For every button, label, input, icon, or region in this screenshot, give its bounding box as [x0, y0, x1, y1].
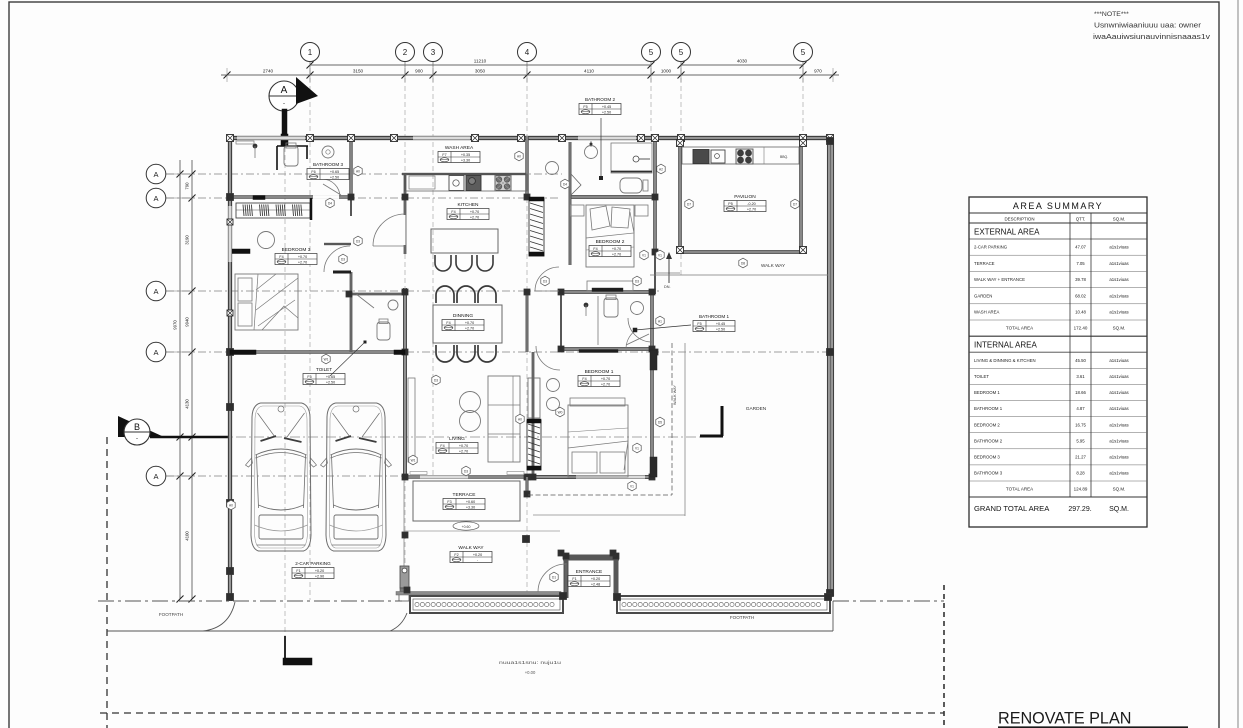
svg-text:+0.70: +0.70	[470, 210, 479, 214]
svg-text:F4: F4	[451, 210, 455, 214]
svg-text:a1s1viuas: a1s1viuas	[1109, 422, 1128, 427]
svg-text:+0.00: +0.00	[525, 670, 536, 675]
svg-text:F5: F5	[583, 105, 587, 109]
svg-text:+2.70: +2.70	[465, 327, 474, 331]
svg-text:BATHROOM 3: BATHROOM 3	[974, 471, 1003, 476]
svg-text:+3.30: +3.30	[461, 159, 470, 163]
svg-text:LIVING: LIVING	[449, 436, 465, 442]
svg-text:+0.60: +0.60	[466, 500, 475, 504]
svg-text:iwaAauiwsiunauvinnisnaaas1v: iwaAauiwsiunauvinnisnaaas1v	[1093, 32, 1210, 41]
svg-text:KITCHEN: KITCHEN	[457, 202, 479, 208]
svg-text:BATHROOM 1: BATHROOM 1	[699, 314, 729, 319]
svg-text:TERRACE: TERRACE	[974, 261, 995, 266]
svg-text:4100: 4100	[185, 531, 190, 541]
svg-text:+2.48: +2.48	[591, 583, 600, 587]
svg-text:AREA SUMMARY: AREA SUMMARY	[1013, 201, 1103, 211]
svg-text:Usnwniwiaaniuuu uaa: owner: Usnwniwiaaniuuu uaa: owner	[1094, 21, 1202, 30]
svg-text:5.95: 5.95	[1076, 438, 1085, 443]
svg-text:D3: D3	[543, 279, 547, 283]
svg-text:297.29.: 297.29.	[1068, 506, 1091, 513]
svg-text:1: 1	[308, 48, 313, 57]
svg-text:V1: V1	[658, 253, 662, 257]
svg-text:SQ.M.: SQ.M.	[1113, 326, 1126, 331]
svg-text:+0.70: +0.70	[465, 321, 474, 325]
svg-text:a1s1viuas: a1s1viuas	[1109, 374, 1128, 379]
svg-text:a1s1viuas: a1s1viuas	[1109, 245, 1128, 250]
svg-text:D4: D4	[563, 182, 567, 186]
svg-text:PAVILION: PAVILION	[734, 194, 756, 200]
svg-text:+0.70: +0.70	[459, 444, 468, 448]
svg-text:TOTAL AREA: TOTAL AREA	[1006, 326, 1033, 331]
svg-text:A: A	[281, 85, 288, 96]
svg-text:3150: 3150	[353, 69, 364, 74]
svg-text:4110: 4110	[584, 69, 594, 74]
svg-text:172.40: 172.40	[1074, 326, 1088, 331]
svg-text:A1: A1	[658, 319, 662, 323]
svg-text:DN.: DN.	[664, 285, 671, 289]
svg-text:F5: F5	[697, 322, 701, 326]
svg-text:V1: V1	[642, 253, 646, 257]
svg-text:5: 5	[679, 48, 684, 57]
svg-text:BATHROOM 3: BATHROOM 3	[313, 162, 343, 167]
svg-text:RENOVATE PLAN: RENOVATE PLAN	[998, 710, 1131, 728]
svg-text:WALK WAY: WALK WAY	[673, 385, 677, 405]
svg-text:+0.45: +0.45	[602, 105, 611, 109]
svg-text:124.89: 124.89	[1074, 487, 1088, 492]
svg-text:WASH AREA: WASH AREA	[974, 310, 1000, 315]
svg-text:3190: 3190	[185, 235, 190, 245]
svg-text:5: 5	[649, 48, 654, 57]
svg-text:+2.50: +2.50	[330, 176, 339, 180]
svg-text:+0.20: +0.20	[591, 577, 600, 581]
svg-text:F4: F4	[446, 321, 450, 325]
svg-text:a1s1viuas: a1s1viuas	[1109, 390, 1128, 395]
svg-text:TOILET: TOILET	[974, 374, 989, 379]
svg-text:+0.35: +0.35	[461, 153, 470, 157]
svg-text:WALK WAY + ENTRANCE: WALK WAY + ENTRANCE	[974, 277, 1025, 282]
svg-text:W0: W0	[558, 410, 563, 414]
svg-text:D4: D4	[328, 201, 332, 205]
svg-text:+2.70: +2.70	[601, 383, 610, 387]
svg-text:+0.70: +0.70	[601, 377, 610, 381]
svg-text:+2.70: +2.70	[470, 216, 479, 220]
svg-text:D3: D3	[464, 469, 468, 473]
svg-text:D3: D3	[341, 257, 345, 261]
svg-text:A: A	[153, 194, 158, 203]
svg-text:-: -	[283, 101, 285, 107]
svg-text:D3: D3	[635, 279, 639, 283]
svg-text:F7: F7	[442, 153, 446, 157]
svg-text:WALK WAY: WALK WAY	[458, 545, 484, 551]
svg-text:a1s1viuas: a1s1viuas	[1109, 277, 1128, 282]
svg-text:+0.60: +0.60	[462, 525, 471, 529]
svg-text:3050: 3050	[475, 69, 486, 74]
svg-text:900: 900	[415, 69, 423, 74]
svg-text:F4: F4	[582, 377, 586, 381]
svg-text:BATHROOM 2: BATHROOM 2	[974, 438, 1003, 443]
svg-text:+2.50: +2.50	[716, 328, 725, 332]
svg-text:A: A	[153, 348, 158, 357]
svg-text:WASH AREA: WASH AREA	[445, 145, 474, 151]
svg-text:D1: D1	[552, 575, 556, 579]
svg-text:2-CAR PARKING: 2-CAR PARKING	[974, 245, 1008, 250]
svg-text:V1: V1	[630, 484, 634, 488]
svg-text:9970: 9970	[173, 320, 178, 330]
svg-text:4.87: 4.87	[1076, 406, 1085, 411]
svg-text:***NOTE***: ***NOTE***	[1094, 11, 1129, 18]
svg-text:2740: 2740	[263, 69, 274, 74]
svg-text:EXTERNAL AREA: EXTERNAL AREA	[974, 228, 1040, 237]
svg-text:D3: D3	[434, 378, 438, 382]
svg-text:+3.30: +3.30	[466, 506, 475, 510]
svg-text:BEDROOM 2: BEDROOM 2	[974, 422, 1000, 427]
svg-text:GARDEN: GARDEN	[974, 293, 992, 298]
svg-text:790: 790	[185, 182, 190, 190]
svg-text:5: 5	[801, 48, 806, 57]
svg-text:68.02: 68.02	[1075, 293, 1086, 298]
svg-text:F1: F1	[572, 577, 576, 581]
svg-text:+2.70: +2.70	[459, 450, 468, 454]
svg-text:GARDEN: GARDEN	[746, 406, 767, 412]
svg-text:W1: W1	[324, 357, 329, 361]
svg-text:D3: D3	[356, 239, 360, 243]
svg-text:9940: 9940	[185, 317, 190, 327]
svg-text:INTERNAL AREA: INTERNAL AREA	[974, 341, 1037, 350]
svg-text:+2.50: +2.50	[326, 381, 335, 385]
svg-text:LIVING & DINNING & KITCHEN: LIVING & DINNING & KITCHEN	[974, 358, 1036, 363]
svg-text:BEDROOM 2: BEDROOM 2	[596, 239, 625, 245]
svg-text:4: 4	[525, 48, 530, 57]
svg-text:TOTAL AREA: TOTAL AREA	[1006, 487, 1033, 492]
svg-text:+0.20: +0.20	[473, 553, 482, 557]
svg-text:+0.70: +0.70	[298, 255, 307, 259]
svg-text:a1s1viuas: a1s1viuas	[1109, 438, 1128, 443]
svg-text:-: -	[136, 436, 138, 442]
svg-text:A: A	[153, 170, 158, 179]
svg-text:F6: F6	[311, 170, 315, 174]
svg-text:nuua1s1snu: nuju1u: nuua1s1snu: nuju1u	[499, 660, 562, 665]
svg-text:A2: A2	[659, 167, 663, 171]
svg-text:BEDROOM 3: BEDROOM 3	[282, 247, 311, 253]
svg-text:A0: A0	[518, 417, 522, 421]
svg-text:SQ.M.: SQ.M.	[1109, 506, 1129, 513]
svg-text:V1: V1	[635, 446, 639, 450]
svg-text:F4: F4	[440, 444, 444, 448]
svg-text:2-CAR PARKING: 2-CAR PARKING	[295, 561, 331, 566]
svg-text:TOILET: TOILET	[316, 367, 332, 372]
svg-text:WALK WAY: WALK WAY	[761, 263, 785, 268]
svg-text:45.50: 45.50	[1075, 358, 1086, 363]
svg-text:F1: F1	[296, 569, 300, 573]
svg-text:11210: 11210	[474, 59, 487, 64]
svg-text:+0.20: +0.20	[315, 569, 324, 573]
svg-text:A: A	[153, 472, 158, 481]
svg-text:A0: A0	[229, 503, 233, 507]
svg-text:A0: A0	[356, 169, 360, 173]
svg-text:F3: F3	[447, 500, 451, 504]
svg-text:D7: D7	[793, 202, 797, 206]
svg-text:BEDROOM 3: BEDROOM 3	[974, 454, 1000, 459]
svg-text:47.07: 47.07	[1075, 245, 1086, 250]
svg-text:a1s1viuas: a1s1viuas	[1109, 261, 1128, 266]
svg-text:a1s1viuas: a1s1viuas	[1109, 406, 1128, 411]
svg-text:+2.70: +2.70	[612, 253, 621, 257]
svg-text:4030: 4030	[737, 59, 748, 64]
svg-text:3.61: 3.61	[1076, 374, 1085, 379]
svg-text:D5: D5	[658, 420, 662, 424]
svg-text:F5: F5	[307, 375, 311, 379]
svg-text:+2.90: +2.90	[315, 575, 324, 579]
svg-text:a1s1viuas: a1s1viuas	[1109, 358, 1128, 363]
svg-text:8.28: 8.28	[1076, 471, 1085, 476]
svg-text:3: 3	[431, 48, 436, 57]
svg-text:21.27: 21.27	[1075, 454, 1086, 459]
svg-text:FOOTPATH: FOOTPATH	[730, 615, 754, 620]
svg-text:BBQ.: BBQ.	[780, 155, 788, 159]
svg-text:GRAND TOTAL AREA: GRAND TOTAL AREA	[974, 504, 1050, 513]
svg-text:10.48: 10.48	[1075, 310, 1086, 315]
svg-text:4130: 4130	[185, 399, 190, 409]
svg-text:BATHROOM 2: BATHROOM 2	[585, 97, 615, 102]
svg-text:F2: F2	[454, 553, 458, 557]
svg-text:+2.50: +2.50	[602, 111, 611, 115]
svg-text:a1s1viuas: a1s1viuas	[1109, 310, 1128, 315]
svg-text:QTT.: QTT.	[1076, 217, 1086, 222]
svg-text:+0.45: +0.45	[716, 322, 725, 326]
svg-text:18.66: 18.66	[1075, 390, 1086, 395]
svg-text:F4: F4	[279, 255, 283, 259]
svg-text:+2.70: +2.70	[298, 261, 307, 265]
svg-text:-0.20: -0.20	[747, 202, 755, 206]
svg-text:P5: P5	[728, 202, 733, 206]
svg-text:1000: 1000	[661, 69, 672, 74]
svg-text:+0.65: +0.65	[330, 170, 339, 174]
svg-text:BEDROOM 1: BEDROOM 1	[585, 369, 614, 375]
svg-text:16.75: 16.75	[1075, 422, 1086, 427]
svg-text:A0: A0	[517, 154, 521, 158]
svg-text:a1s1viuas: a1s1viuas	[1109, 471, 1128, 476]
svg-text:+2.70: +2.70	[747, 208, 756, 212]
svg-text:D8: D8	[741, 261, 745, 265]
svg-text:FOOTPATH: FOOTPATH	[159, 612, 183, 617]
svg-text:F4: F4	[593, 247, 597, 251]
svg-text:SQ.M.: SQ.M.	[1113, 487, 1126, 492]
svg-text:DESCRIPTION: DESCRIPTION	[1004, 217, 1034, 222]
svg-text:7.05: 7.05	[1076, 261, 1085, 266]
svg-text:DINNING: DINNING	[453, 313, 474, 319]
svg-text:BATHROOM 1: BATHROOM 1	[974, 406, 1003, 411]
svg-text:BEDROOM 1: BEDROOM 1	[974, 390, 1000, 395]
svg-text:39.78: 39.78	[1075, 277, 1086, 282]
svg-text:+0.70: +0.70	[612, 247, 621, 251]
svg-text:a1s1viuas: a1s1viuas	[1109, 293, 1128, 298]
svg-text:TERRACE: TERRACE	[453, 492, 476, 498]
svg-text:970: 970	[814, 69, 822, 74]
svg-text:a1s1viuas: a1s1viuas	[1109, 454, 1128, 459]
svg-text:ENTRANCE: ENTRANCE	[576, 569, 602, 575]
svg-text:W1: W1	[411, 458, 416, 462]
svg-text:SQ.M.: SQ.M.	[1113, 217, 1125, 222]
svg-text:A: A	[153, 287, 158, 296]
svg-text:D7: D7	[687, 202, 691, 206]
svg-text:2: 2	[403, 48, 408, 57]
svg-text:B: B	[134, 422, 140, 432]
